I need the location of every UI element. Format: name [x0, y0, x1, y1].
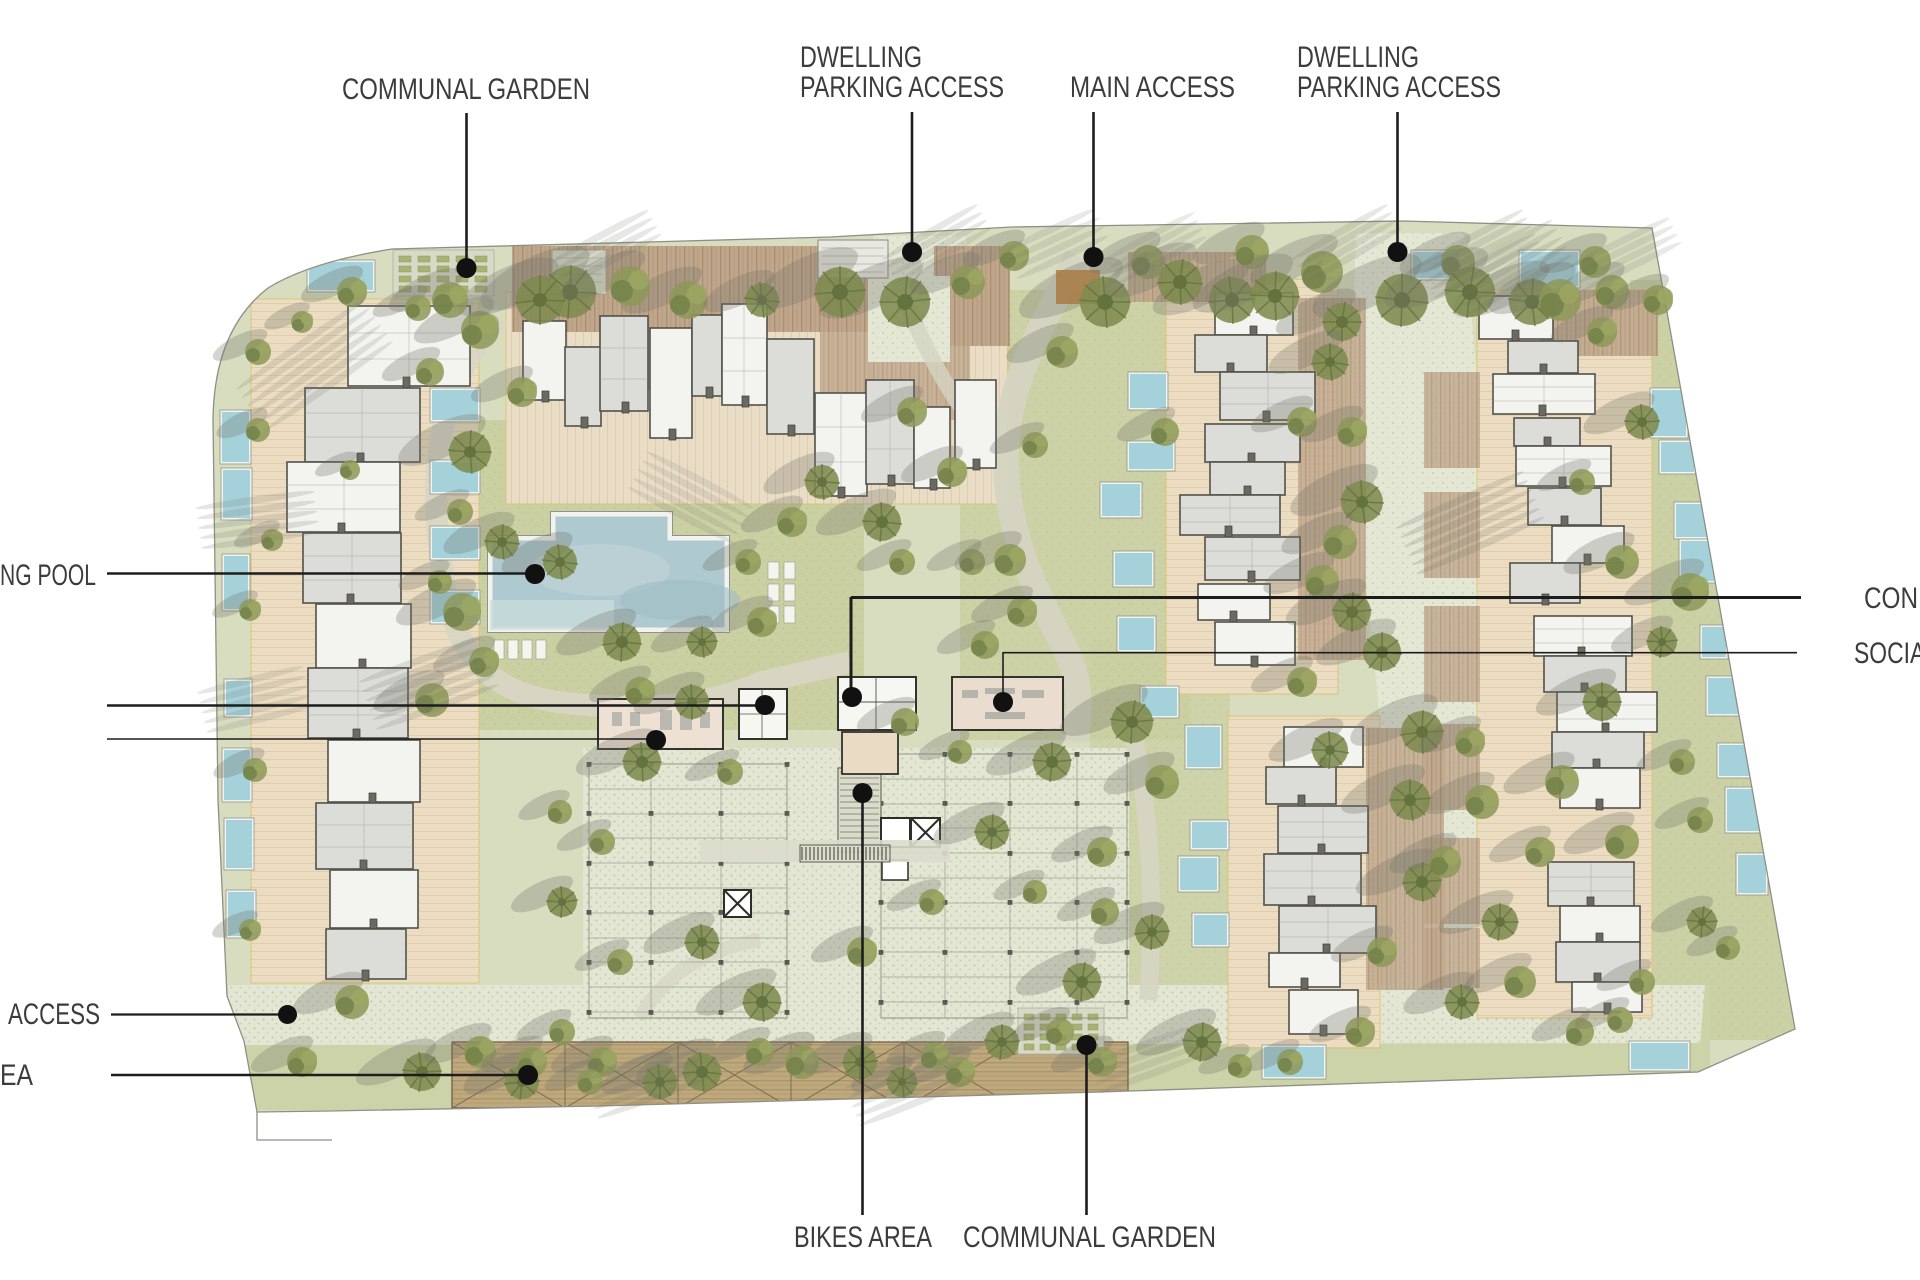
svg-text:BIKES AREA: BIKES AREA: [794, 1221, 932, 1254]
svg-text:ACCESS: ACCESS: [8, 998, 100, 1031]
svg-text:NG POOL: NG POOL: [0, 559, 96, 592]
svg-text:SOCIAL: SOCIAL: [1854, 637, 1920, 670]
svg-text:COMMUNAL GARDEN: COMMUNAL GARDEN: [342, 73, 590, 106]
svg-text:COMMUNAL GARDEN: COMMUNAL GARDEN: [963, 1221, 1216, 1254]
svg-text:PARKING ACCESS: PARKING ACCESS: [800, 71, 1004, 104]
svg-text:CON: CON: [1864, 582, 1918, 615]
svg-text:PARKING ACCESS: PARKING ACCESS: [1297, 71, 1501, 104]
svg-text:DWELLING: DWELLING: [1297, 41, 1419, 74]
svg-text:EA: EA: [0, 1059, 33, 1092]
svg-text:MAIN ACCESS: MAIN ACCESS: [1070, 71, 1235, 104]
svg-text:DWELLING: DWELLING: [800, 41, 922, 74]
